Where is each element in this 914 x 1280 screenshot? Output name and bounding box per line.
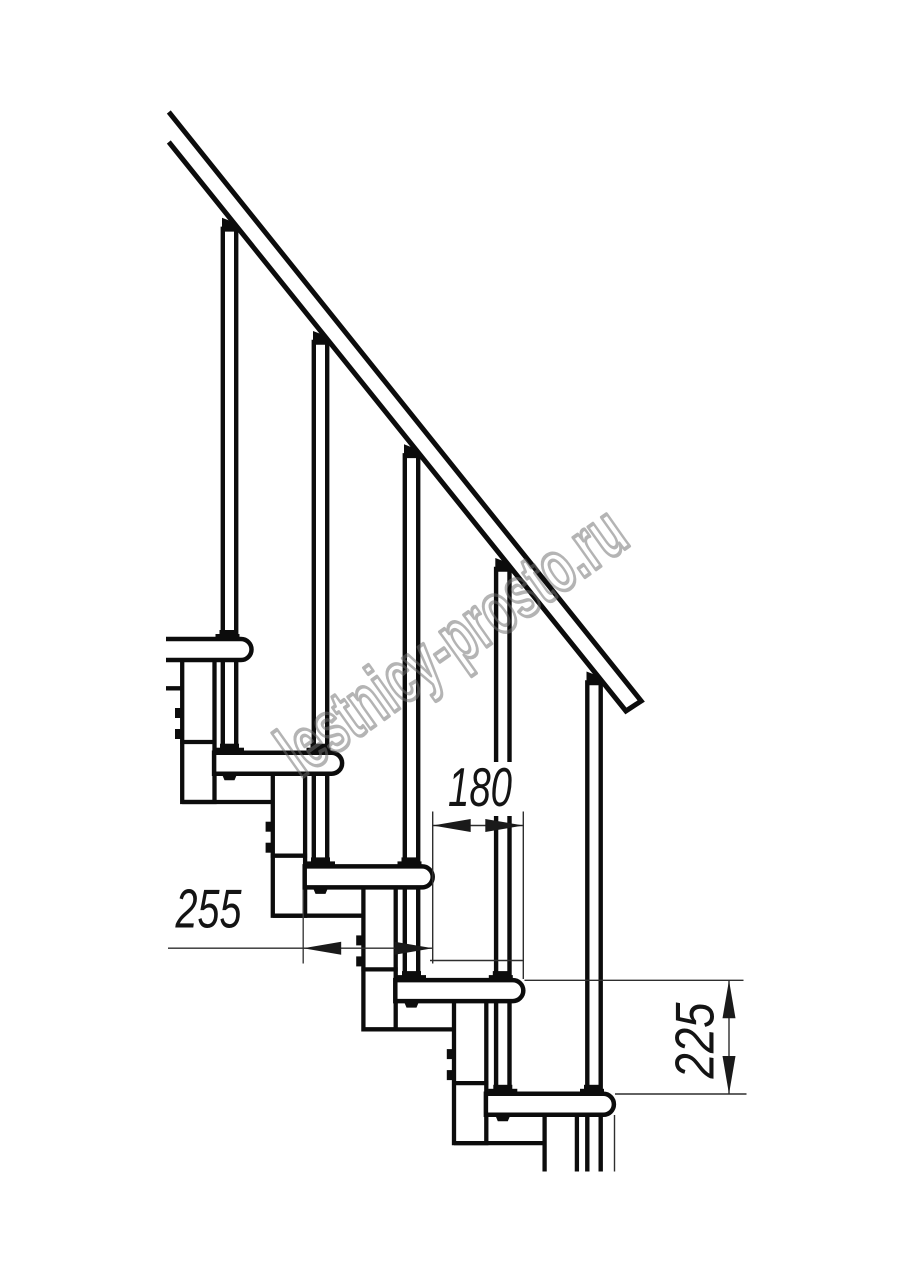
svg-text:225: 225	[664, 1002, 726, 1079]
svg-text:255: 255	[175, 878, 242, 940]
svg-text:180: 180	[448, 756, 512, 818]
